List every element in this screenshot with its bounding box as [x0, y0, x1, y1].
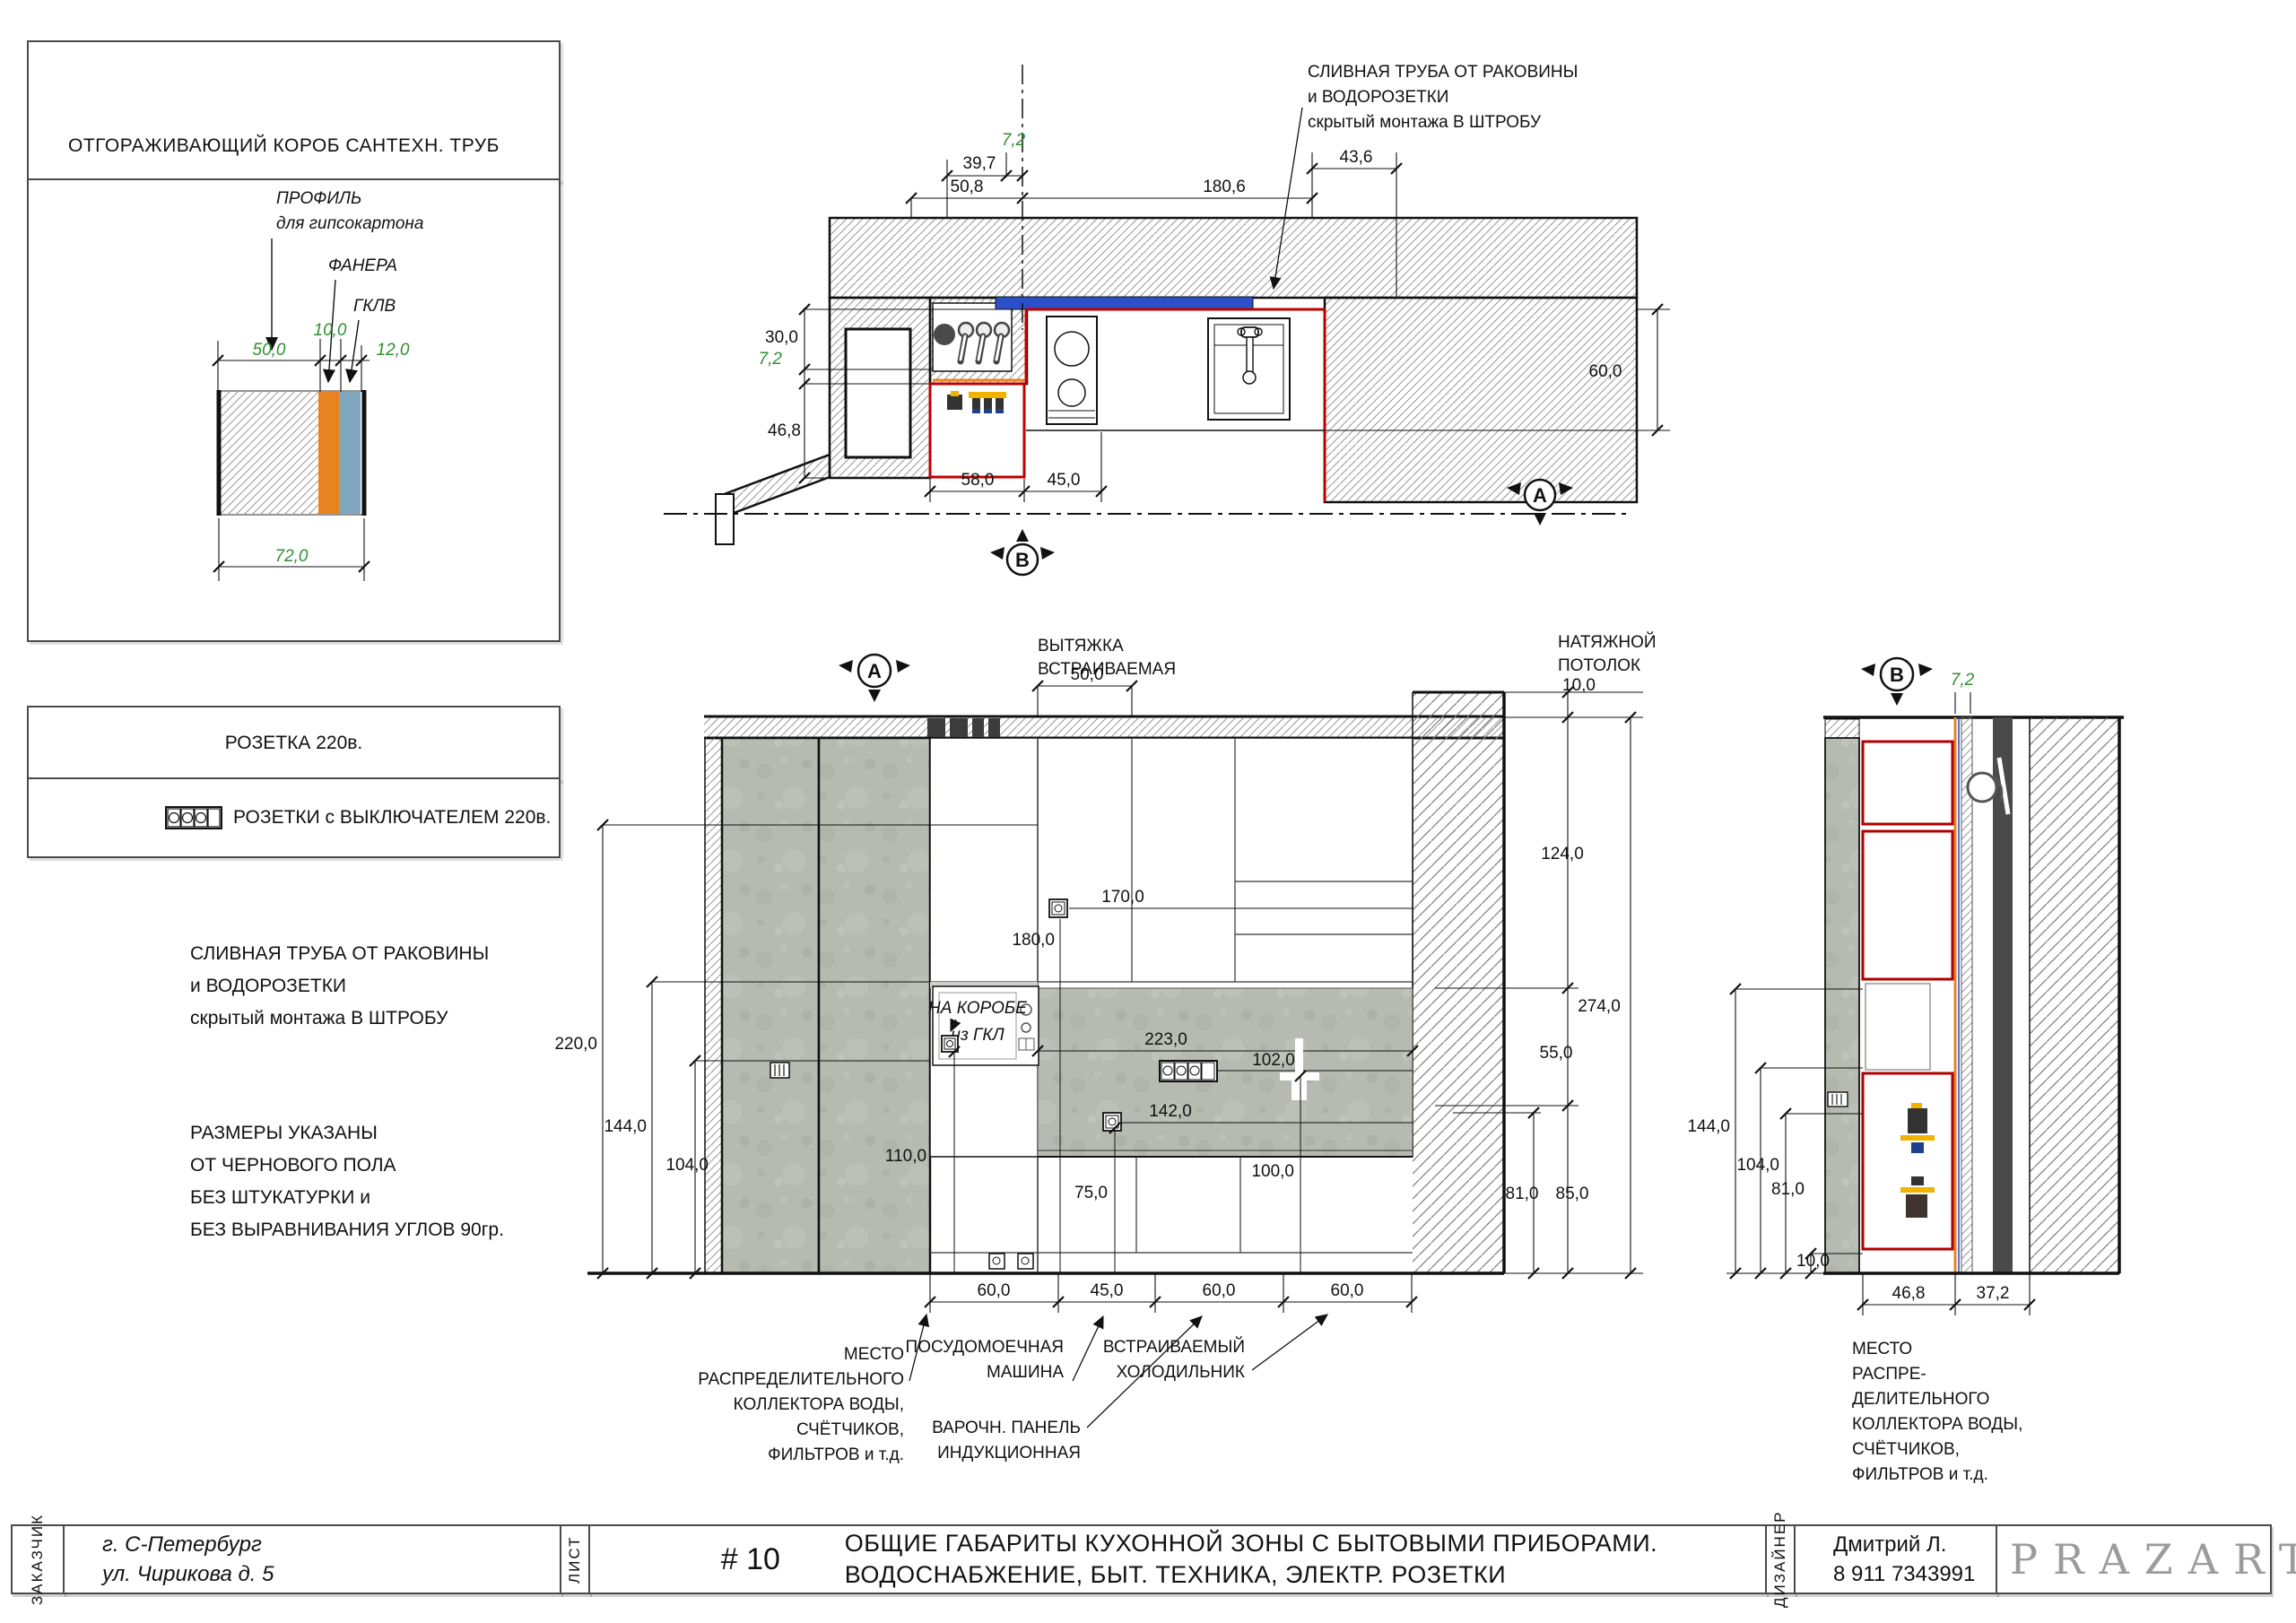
- sheet-label-cell: ЛИСТ: [560, 1524, 590, 1594]
- plan-hob: [1047, 317, 1097, 424]
- dim-170: 170,0: [1101, 888, 1144, 907]
- dim-50-8: 50,8: [951, 178, 984, 196]
- marker-b-letter: B: [1015, 549, 1030, 571]
- dim-124: 124,0: [1541, 845, 1584, 864]
- plan-window-opening: [846, 329, 910, 457]
- duct-detail-drawing: ПРОФИЛЬ для гипсокартона ФАНЕРА ГКЛВ 50,…: [27, 178, 557, 638]
- panel-duct-title-box: ОТГОРАЖИВАЮЩИЙ КОРОБ САНТЕХН. ТРУБ: [27, 40, 561, 182]
- plan-note-line2: и ВОДОРОЗЕТКИ: [1308, 88, 1448, 107]
- dim-50: 50,0: [253, 341, 286, 360]
- elev-b-ceiling-stub: [1825, 719, 1859, 738]
- ann-collector-b-4: КОЛЛЕКТОРА ВОДЫ,: [1852, 1415, 2022, 1434]
- dim-81-a: 81,0: [1506, 1185, 1539, 1203]
- marker-a-letter: A: [1533, 484, 1547, 507]
- plan-dim-labels-left: 30,0 7,2 46,8: [759, 328, 801, 440]
- dim-144-a: 144,0: [604, 1117, 647, 1136]
- title-block: ЗАКАЗЧИК г. С-Петербург ул. Чирикова д. …: [13, 1524, 2272, 1594]
- ann-collector-a-5: ФИЛЬТРОВ и т.д.: [768, 1445, 904, 1464]
- hood-label: ВЫТЯЖКА ВСТРАИВАЕМАЯ: [1038, 637, 1176, 679]
- hood-dim: [1038, 686, 1132, 717]
- studio-logo: PRAZART: [1997, 1535, 2270, 1584]
- plan-dim-lines-bottom: [930, 432, 1101, 502]
- dim-60-plan: 60,0: [1589, 362, 1622, 381]
- dim-104-b: 104,0: [1736, 1156, 1779, 1175]
- legend-socket-box: РОЗЕТКА 220в.: [27, 706, 561, 781]
- dim-58: 58,0: [961, 471, 995, 490]
- ann-collector-a-4: СЧЁТЧИКОВ,: [796, 1420, 904, 1439]
- legend-socket-switch-box: РОЗЕТКИ с ВЫКЛЮЧАТЕЛЕМ 220в.: [27, 777, 561, 858]
- dim-46-8-b: 46,8: [1892, 1284, 1926, 1303]
- sheet-title-cell: # 10 ОБЩИЕ ГАБАРИТЫ КУХОННОЙ ЗОНЫ С БЫТО…: [588, 1524, 1767, 1594]
- sheet-label: ЛИСТ: [566, 1526, 584, 1593]
- designer-label-cell: ДИЗАЙНЕР: [1765, 1524, 1796, 1594]
- dim-180-6: 180,6: [1203, 178, 1246, 196]
- ann-collector-b-6: ФИЛЬТРОВ и т.д.: [1852, 1465, 1988, 1484]
- dim-7-2-left: 7,2: [759, 350, 783, 369]
- ann-fridge: ВСТРАИВАЕМЫЙ ХОЛОДИЛЬНИК: [1103, 1337, 1245, 1382]
- ann-collector-b-1: МЕСТО: [1852, 1340, 1912, 1358]
- plan-wall-endcap: [716, 494, 734, 544]
- elev-a-marker: A: [839, 655, 910, 702]
- elev-b-left-ticks: [1730, 984, 1816, 1279]
- socket-group-icon: [165, 806, 222, 829]
- dim-85: 85,0: [1556, 1185, 1589, 1203]
- ann-dishwasher-2: МАШИНА: [987, 1363, 1064, 1382]
- ann-collector-b: МЕСТО РАСПРЕ- ДЕЛИТЕЛЬНОГО КОЛЛЕКТОРА ВО…: [1852, 1340, 2022, 1484]
- customer-city: г. С-Петербург: [102, 1530, 560, 1559]
- dim-7-2-top: 7,2: [1002, 131, 1026, 150]
- ann-hob-2: ИНДУКЦИОННАЯ: [937, 1444, 1081, 1462]
- socket-group-backsplash: [1160, 1061, 1217, 1081]
- dim-72: 72,0: [275, 547, 309, 566]
- ceiling-line1: НАТЯЖНОЙ: [1558, 632, 1657, 652]
- plan-collector-valves: [947, 391, 1006, 413]
- note-sizes-line4: БЕЗ ВЫРАВНИВАНИЯ УГЛОВ 90гр.: [190, 1214, 504, 1246]
- legend-socket-label: РОЗЕТКА 220в.: [225, 733, 363, 754]
- elev-b-gkl-strip: [1961, 717, 1972, 1273]
- dim-220: 220,0: [554, 1035, 597, 1054]
- dim-180: 180,0: [1012, 931, 1055, 950]
- elev-a-left-strip: [705, 738, 722, 1273]
- plan-drain-pipe: [996, 297, 1253, 309]
- plan-water-outlets: [933, 303, 1012, 371]
- elevation-b: B 7,2: [1695, 619, 2233, 1480]
- ann-dishwasher-1: ПОСУДОМОЕЧНАЯ: [906, 1338, 1064, 1357]
- dim-b60a: 60,0: [978, 1281, 1011, 1300]
- note-sizes-line1: РАЗМЕРЫ УКАЗАНЫ: [190, 1117, 504, 1150]
- note-drain-line2: и ВОДОРОЗЕТКИ: [190, 970, 489, 1002]
- dim-81-b: 81,0: [1771, 1180, 1805, 1199]
- dim-b60c: 60,0: [1331, 1281, 1364, 1300]
- label-profile-2: для гипсокартона: [276, 214, 423, 233]
- detail-section: [219, 390, 365, 516]
- ann-dishwasher-arrow: [1073, 1316, 1103, 1381]
- note-dimensions: РАЗМЕРЫ УКАЗАНЫ ОТ ЧЕРНОВОГО ПОЛА БЕЗ ШТ…: [190, 1117, 504, 1246]
- elev-b-oven-box: [1865, 984, 1930, 1070]
- customer-label: ЗАКАЗЧИК: [29, 1526, 47, 1593]
- sheet-title-line1: ОБЩИЕ ГАБАРИТЫ КУХОННОЙ ЗОНЫ С БЫТОВЫМИ …: [845, 1528, 1657, 1559]
- dim-45: 45,0: [1048, 471, 1081, 490]
- dim-39-7: 39,7: [963, 154, 996, 173]
- concrete-panel-2: [819, 738, 930, 1273]
- customer-label-cell: ЗАКАЗЧИК: [11, 1524, 65, 1594]
- ann-collector-b-3: ДЕЛИТЕЛЬНОГО: [1852, 1390, 1989, 1409]
- korobe-line1: НА КОРОБЕ: [928, 999, 1027, 1018]
- plan-view: 7,2 39,7 50,8 180,6 43,6 30,0 7,2 46,8 5…: [565, 36, 1695, 619]
- dim-223: 223,0: [1144, 1030, 1187, 1049]
- plan-note-line3: скрытый монтажа В ШТРОБУ: [1308, 113, 1542, 132]
- label-profile-1: ПРОФИЛЬ: [276, 189, 361, 208]
- dim-142: 142,0: [1149, 1102, 1192, 1121]
- dim-102: 102,0: [1252, 1051, 1295, 1070]
- ceiling-line2: ПОТОЛОК: [1558, 656, 1640, 675]
- elev-b-shaft: [1993, 717, 2013, 1273]
- elev-a-right-wall: [1413, 692, 1504, 1273]
- dim-b7-2: 7,2: [1951, 671, 1975, 690]
- dim-hood-50: 50,0: [1071, 665, 1104, 684]
- dim-46-8: 46,8: [768, 421, 801, 440]
- concrete-panel-1: [722, 738, 819, 1273]
- ann-fridge-arrow: [1252, 1315, 1327, 1370]
- socket-top: [1049, 899, 1067, 917]
- designer-label: ДИЗАЙНЕР: [1771, 1526, 1789, 1593]
- ann-collector-a-2: РАСПРЕДЕЛИТЕЛЬНОГО: [698, 1370, 904, 1389]
- plan-dim-labels-bottom: 58,0 45,0: [961, 471, 1081, 490]
- plywood-layer: [318, 392, 339, 514]
- plinth-sockets: [989, 1254, 1033, 1269]
- dim-110: 110,0: [885, 1147, 926, 1166]
- dim-12: 12,0: [377, 341, 410, 360]
- note-drain-pipe: СЛИВНАЯ ТРУБА ОТ РАКОВИНЫ и ВОДОРОЗЕТКИ …: [190, 938, 489, 1035]
- elev-a-marker-letter: A: [867, 660, 882, 682]
- designer-cell: Дмитрий Л. 8 911 7343991: [1794, 1524, 1997, 1594]
- elev-b-concrete: [1825, 738, 1859, 1273]
- note-drain-line3: скрытый монтажа В ШТРОБУ: [190, 1002, 489, 1035]
- socket-142: [1103, 1113, 1121, 1131]
- elev-b-marker-letter: B: [1890, 664, 1904, 686]
- drawing-sheet: ОТГОРАЖИВАЮЩИЙ КОРОБ САНТЕХН. ТРУБ ПРОФИ…: [0, 0, 2296, 1623]
- dim-10: 10,0: [314, 321, 347, 340]
- note-sizes-line3: БЕЗ ШТУКАТУРКИ и: [190, 1182, 504, 1214]
- ann-collector-b-2: РАСПРЕ-: [1852, 1365, 1926, 1384]
- customer-street: ул. Чирикова д. 5: [102, 1559, 560, 1589]
- korobe-line2: из ГКЛ: [951, 1026, 1004, 1045]
- plan-note-line1: СЛИВНАЯ ТРУБА ОТ РАКОВИНЫ: [1308, 63, 1578, 82]
- label-plywood: ФАНЕРА: [328, 256, 397, 275]
- dim-75: 75,0: [1074, 1184, 1108, 1202]
- plan-marker-b: B: [990, 529, 1055, 575]
- backsplash: [1038, 988, 1413, 1157]
- gkl-layer: [339, 392, 361, 514]
- note-sizes-line2: ОТ ЧЕРНОВОГО ПОЛА: [190, 1150, 504, 1182]
- plan-dim-labels-top: 7,2 39,7 50,8 180,6 43,6: [951, 131, 1373, 196]
- ann-collector-a: МЕСТО РАСПРЕДЕЛИТЕЛЬНОГО КОЛЛЕКТОРА ВОДЫ…: [698, 1345, 904, 1464]
- elev-b-wall: [2030, 717, 2119, 1273]
- concrete-grille-icon: [770, 1063, 789, 1078]
- ann-hob: ВАРОЧН. ПАНЕЛЬ ИНДУКЦИОННАЯ: [932, 1419, 1081, 1462]
- hood-line1: ВЫТЯЖКА: [1038, 637, 1124, 655]
- elev-b-marker: B: [1861, 658, 1933, 706]
- dim-144-b: 144,0: [1687, 1117, 1730, 1136]
- legend-socket-switch-label: РОЗЕТКИ с ВЫКЛЮЧАТЕЛЕМ 220в.: [233, 807, 551, 829]
- dim-37-2-b: 37,2: [1977, 1284, 2010, 1303]
- ann-collector-b-5: СЧЁТЧИКОВ,: [1852, 1440, 1960, 1459]
- ceiling-band: [704, 716, 1504, 738]
- dim-104-a: 104,0: [665, 1156, 709, 1175]
- designer-name: Дмитрий Л.: [1833, 1530, 1996, 1559]
- dim-30: 30,0: [765, 328, 798, 347]
- elev-b-grille-icon: [1828, 1092, 1848, 1107]
- ann-hob-1: ВАРОЧН. ПАНЕЛЬ: [932, 1419, 1081, 1437]
- sheet-title-line2: ВОДОСНАБЖЕНИЕ, БЫТ. ТЕХНИКА, ЭЛЕКТР. РОЗ…: [845, 1559, 1657, 1591]
- ann-fridge-1: ВСТРАИВАЕМЫЙ: [1103, 1337, 1245, 1357]
- dim-100: 100,0: [1251, 1162, 1294, 1181]
- ann-collector-a-3: КОЛЛЕКТОРА ВОДЫ,: [734, 1395, 904, 1414]
- dim-55: 55,0: [1540, 1044, 1573, 1063]
- elev-a-bottom-labels: 60,0 45,0 60,0 60,0: [978, 1281, 1364, 1300]
- dim-10-b: 10,0: [1796, 1252, 1830, 1271]
- ceiling-label: НАТЯЖНОЙ ПОТОЛОК 10,0: [1558, 632, 1657, 695]
- vent-grille: [927, 718, 1000, 737]
- logo-cell: PRAZART: [1996, 1524, 2272, 1594]
- designer-phone: 8 911 7343991: [1833, 1559, 1996, 1589]
- dim-b45: 45,0: [1091, 1281, 1124, 1300]
- elevation-a: A ВЫТЯЖКА ВСТРАИВАЕМАЯ 50,0: [565, 619, 1704, 1480]
- label-gkl: ГКЛВ: [353, 297, 396, 316]
- detail-labels: ПРОФИЛЬ для гипсокартона ФАНЕРА ГКЛВ: [276, 189, 423, 316]
- dim-b60b: 60,0: [1203, 1281, 1236, 1300]
- plan-sink: [1208, 318, 1290, 420]
- duct-box-title: ОТГОРАЖИВАЮЩИЙ КОРОБ САНТЕХН. ТРУБ: [68, 135, 500, 157]
- ann-collector-a-1: МЕСТО: [844, 1345, 904, 1364]
- sheet-number: # 10: [698, 1542, 845, 1577]
- note-drain-line1: СЛИВНАЯ ТРУБА ОТ РАКОВИНЫ: [190, 938, 489, 970]
- ann-fridge-2: ХОЛОДИЛЬНИК: [1117, 1363, 1245, 1382]
- dim-43-6: 43,6: [1340, 148, 1373, 167]
- dim-274: 274,0: [1578, 997, 1621, 1016]
- ann-dishwasher: ПОСУДОМОЕЧНАЯ МАШИНА: [906, 1338, 1065, 1382]
- customer-cell: г. С-Петербург ул. Чирикова д. 5: [63, 1524, 561, 1594]
- hood-line2: ВСТРАИВАЕМАЯ: [1038, 660, 1176, 679]
